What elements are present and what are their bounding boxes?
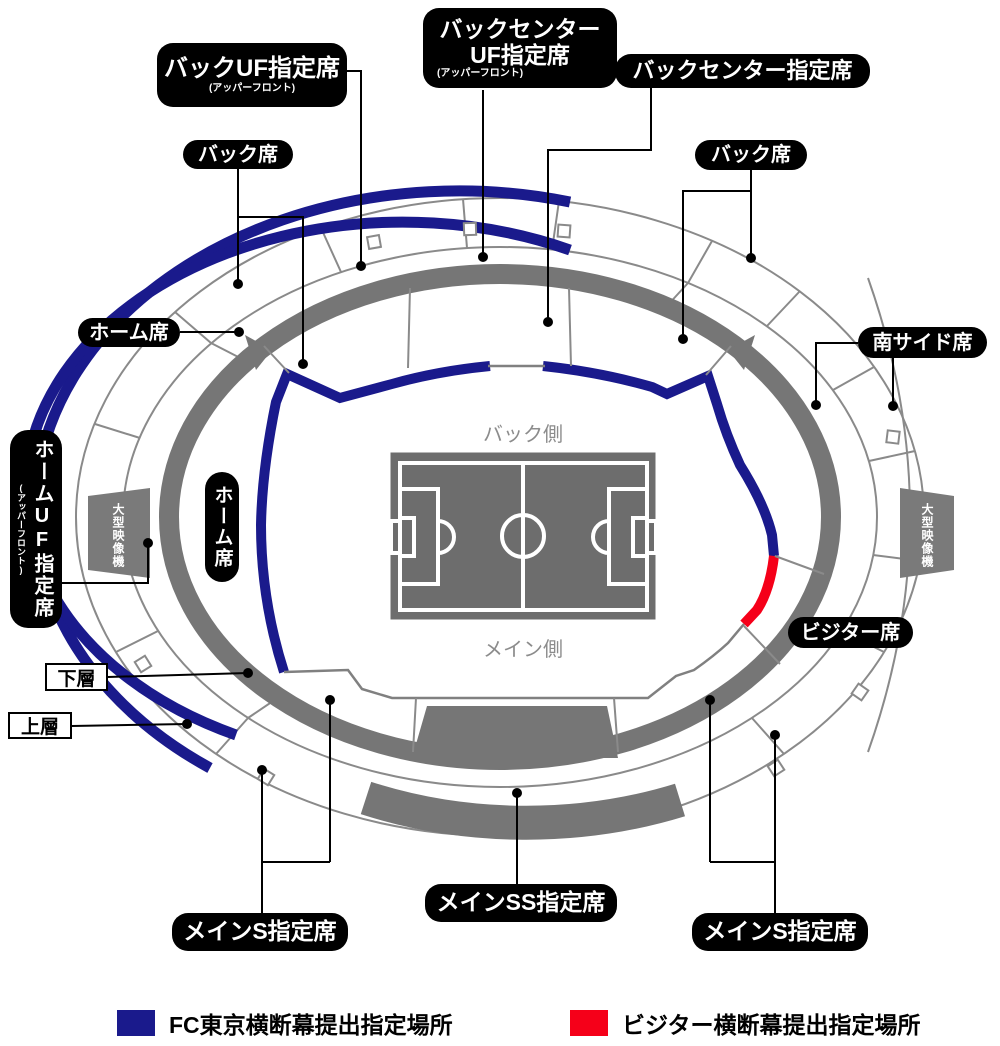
label-main-side: メイン側 bbox=[453, 633, 593, 662]
label-home-seats-left: ホーム席 bbox=[78, 318, 180, 347]
label-video-screen-left: 大型映像機 bbox=[110, 500, 127, 570]
label-home-seats-vertical: ホーム席 bbox=[205, 472, 239, 582]
fc-tokyo-banner-swatch bbox=[117, 1010, 155, 1036]
label-back-seats-right: バック席 bbox=[695, 140, 807, 170]
label-south-side-seats: 南サイド席 bbox=[858, 327, 987, 358]
label-video-screen-right: 大型映像機 bbox=[919, 500, 936, 570]
label-back-center-seats: バックセンター指定席 bbox=[615, 54, 870, 88]
label-text: 下層 bbox=[57, 664, 95, 691]
label-subtext: (アッパーフロント) bbox=[209, 83, 295, 94]
label-back-center-uf-seats: バックセンターUF指定席 (アッパーフロント) bbox=[423, 8, 617, 88]
label-main-s-seats-right: メインS指定席 bbox=[692, 913, 868, 951]
label-back-side: バック側 bbox=[453, 418, 593, 447]
label-upper-tier: 上層 bbox=[8, 712, 72, 739]
label-text: メインS指定席 bbox=[183, 919, 336, 944]
stadium-seat-map: バックUF指定席 (アッパーフロント) バックセンターUF指定席 (アッパーフロ… bbox=[0, 0, 1000, 1046]
visitor-banner-arc bbox=[744, 556, 774, 624]
label-visitor-seats: ビジター席 bbox=[788, 617, 913, 648]
legend-visitor-label: ビジター横断幕提出指定場所 bbox=[622, 1006, 921, 1040]
legend-home-label: FC東京横断幕提出指定場所 bbox=[169, 1006, 453, 1040]
label-text: ホームUF指定席 bbox=[28, 439, 57, 619]
label-text: ホーム席 bbox=[209, 485, 236, 569]
main-ss-stand bbox=[412, 706, 618, 758]
label-text: 南サイド席 bbox=[873, 332, 973, 354]
label-subtext: (アッパーフロント) bbox=[15, 483, 28, 575]
label-text: バックUF指定席 bbox=[164, 56, 340, 82]
label-text: メインSS指定席 bbox=[437, 890, 606, 915]
legend-visitor: ビジター横断幕提出指定場所 bbox=[570, 1006, 921, 1040]
label-subtext: (アッパーフロント) bbox=[437, 68, 523, 79]
label-main-ss-seats: メインSS指定席 bbox=[425, 884, 617, 922]
label-home-uf-seats: (アッパーフロント) ホームUF指定席 bbox=[10, 430, 62, 628]
soccer-pitch bbox=[388, 450, 658, 622]
label-text: バックセンターUF指定席 bbox=[435, 17, 605, 68]
label-back-uf-seats: バックUF指定席 (アッパーフロント) bbox=[157, 43, 347, 107]
label-text: ビジター席 bbox=[801, 622, 901, 644]
label-back-seats-left: バック席 bbox=[183, 140, 293, 169]
label-lower-tier: 下層 bbox=[45, 663, 108, 691]
label-text: バックセンター指定席 bbox=[632, 59, 852, 83]
label-text: メインS指定席 bbox=[703, 919, 856, 944]
main-upper-stand bbox=[366, 798, 680, 823]
label-text: バック席 bbox=[198, 144, 278, 166]
label-text: バック席 bbox=[711, 144, 791, 166]
legend-home: FC東京横断幕提出指定場所 bbox=[117, 1006, 453, 1040]
label-main-s-seats-left: メインS指定席 bbox=[172, 913, 348, 951]
label-text: 上層 bbox=[21, 712, 59, 739]
visitor-banner-swatch bbox=[570, 1010, 608, 1036]
label-text: ホーム席 bbox=[89, 322, 168, 344]
